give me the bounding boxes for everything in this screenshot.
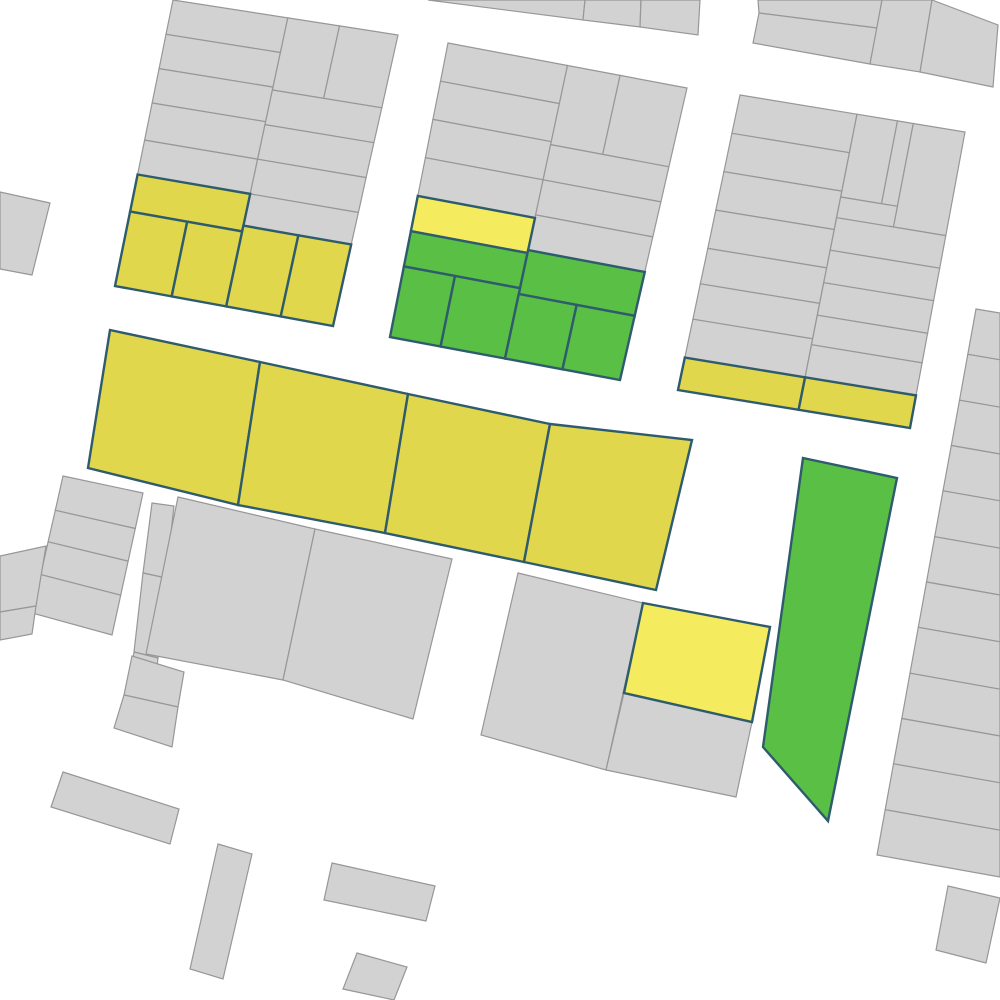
yellow-row-parcel-2[interactable] — [238, 362, 408, 533]
yellow-row-parcel-3[interactable] — [385, 394, 550, 562]
block-east-strips-parcel-3[interactable] — [951, 400, 1000, 454]
parcel-map[interactable] — [0, 0, 1000, 1000]
parcel-map-canvas[interactable] — [0, 0, 1000, 1000]
